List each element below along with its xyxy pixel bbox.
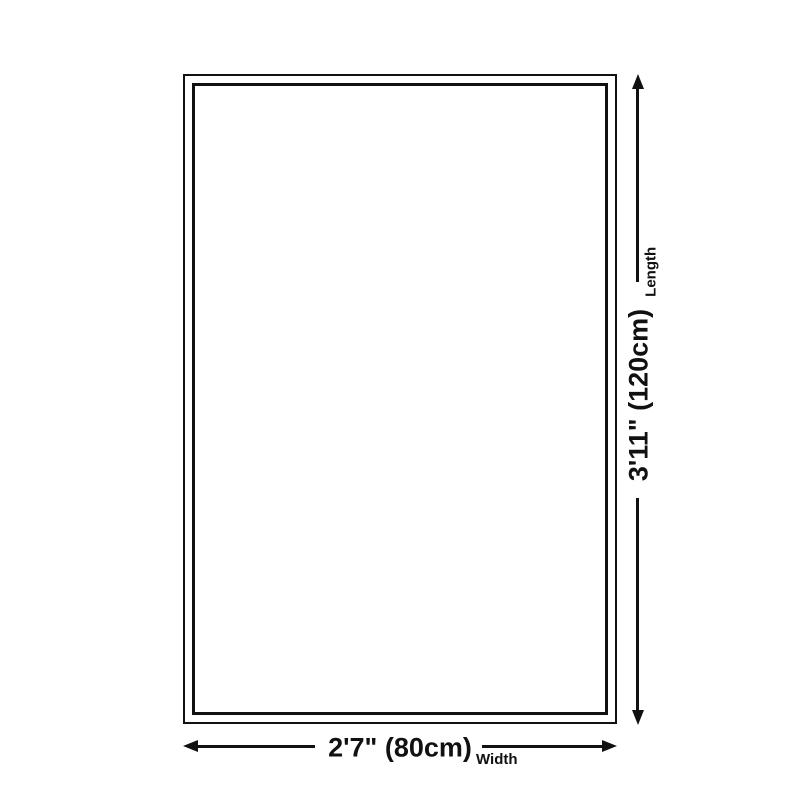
length-value: 3'11" (120cm) xyxy=(624,309,654,481)
width-label: Width xyxy=(476,751,518,768)
rug-outline-outer xyxy=(183,74,617,724)
size-diagram: 3'11" (120cm)Length 2'7" (80cm) Width xyxy=(0,0,800,800)
rug-outline-inner xyxy=(192,83,608,715)
width-value: 2'7" (80cm) xyxy=(328,733,472,764)
width-arrow-right-head xyxy=(602,740,617,752)
length-arrow-down-head xyxy=(632,710,644,725)
length-dimension-text: 3'11" (120cm)Length xyxy=(624,247,655,481)
width-arrow-line-right xyxy=(482,745,604,748)
width-arrow-line-left xyxy=(196,745,315,748)
length-arrow-line-bottom xyxy=(636,498,639,712)
length-label: Length xyxy=(643,247,660,297)
